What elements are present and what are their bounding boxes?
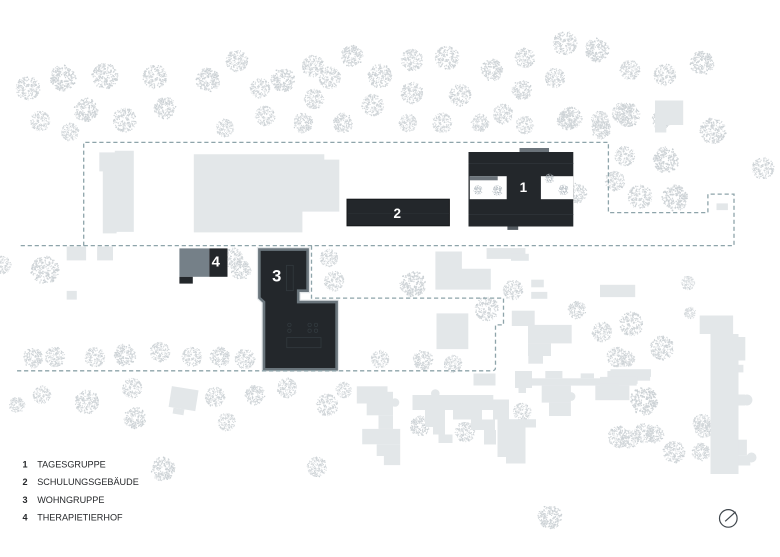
svg-text:TAGESGRUPPE: TAGESGRUPPE: [37, 460, 106, 470]
svg-text:WOHNGRUPPE: WOHNGRUPPE: [37, 495, 104, 505]
svg-text:4: 4: [212, 254, 221, 271]
svg-text:3: 3: [272, 267, 281, 285]
svg-text:2: 2: [394, 206, 402, 221]
svg-text:1: 1: [23, 460, 28, 470]
svg-text:2: 2: [23, 477, 28, 487]
svg-text:THERAPIETIERHOF: THERAPIETIERHOF: [37, 513, 123, 523]
svg-text:SCHULUNGSGEBÄUDE: SCHULUNGSGEBÄUDE: [37, 477, 139, 487]
svg-text:3: 3: [23, 495, 28, 505]
svg-text:1: 1: [520, 180, 528, 195]
